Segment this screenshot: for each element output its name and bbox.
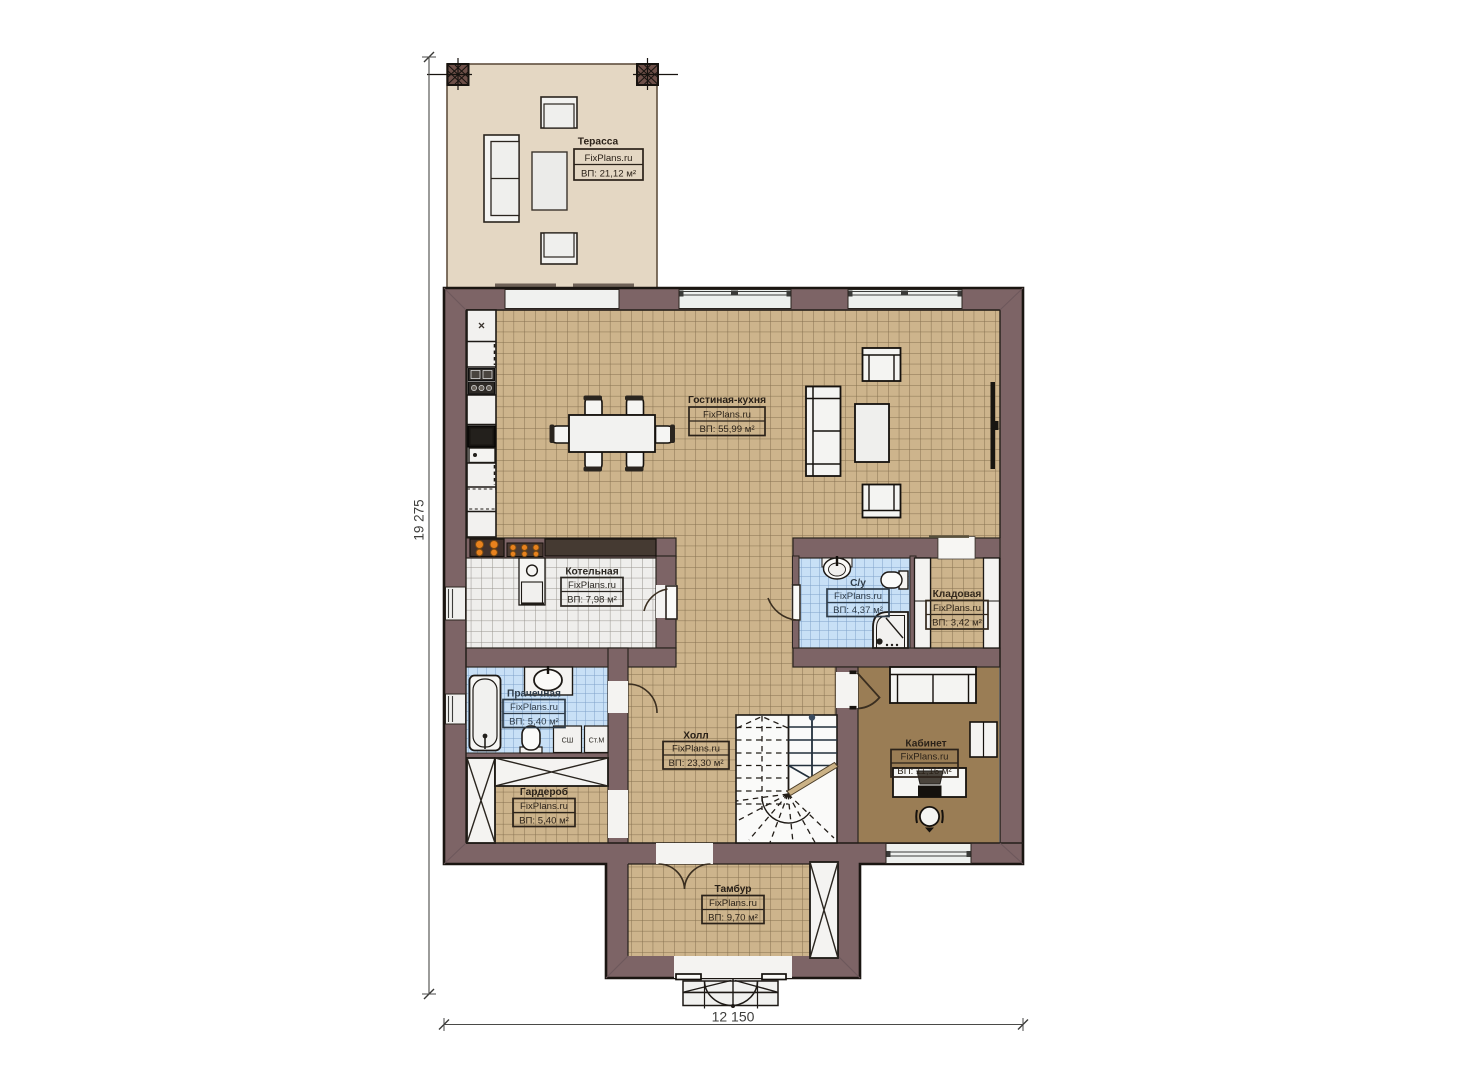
svg-text:СШ: СШ bbox=[562, 736, 574, 745]
svg-text:Терасса: Терасса bbox=[578, 137, 619, 148]
svg-text:ВП: 7,98 м²: ВП: 7,98 м² bbox=[567, 595, 618, 606]
svg-text:FixPlans.ru: FixPlans.ru bbox=[703, 410, 751, 421]
svg-text:ВП: 11,16 м²: ВП: 11,16 м² bbox=[897, 766, 952, 777]
svg-text:FixPlans.ru: FixPlans.ru bbox=[834, 591, 882, 602]
svg-text:ВП: 21,12 м²: ВП: 21,12 м² bbox=[581, 169, 637, 180]
svg-text:Гостиная-кухня: Гостиная-кухня bbox=[688, 395, 766, 406]
svg-text:Котельная: Котельная bbox=[565, 567, 618, 578]
svg-text:Гардероб: Гардероб bbox=[520, 786, 568, 798]
svg-text:FixPlans.ru: FixPlans.ru bbox=[568, 580, 616, 591]
svg-text:ВП: 4,37 м²: ВП: 4,37 м² bbox=[833, 605, 884, 616]
svg-text:С/у: С/у bbox=[850, 578, 866, 589]
svg-text:Кабинет: Кабинет bbox=[905, 738, 946, 750]
svg-text:ВП: 3,42 м²: ВП: 3,42 м² bbox=[932, 618, 983, 629]
svg-text:ВП: 9,70 м²: ВП: 9,70 м² bbox=[708, 913, 759, 924]
svg-text:FixPlans.ru: FixPlans.ru bbox=[585, 153, 633, 164]
svg-text:FixPlans.ru: FixPlans.ru bbox=[520, 801, 568, 812]
svg-text:Тамбур: Тамбур bbox=[715, 883, 752, 895]
svg-text:FixPlans.ru: FixPlans.ru bbox=[709, 898, 757, 909]
svg-text:19 275: 19 275 bbox=[412, 499, 427, 540]
svg-text:Ст.М: Ст.М bbox=[589, 736, 605, 745]
svg-text:Прачечная: Прачечная bbox=[507, 689, 561, 700]
svg-text:ВП: 55,99 м²: ВП: 55,99 м² bbox=[699, 424, 755, 435]
svg-text:ВП: 5,40 м²: ВП: 5,40 м² bbox=[509, 717, 560, 728]
svg-text:Холл: Холл bbox=[683, 731, 709, 742]
svg-text:Кладовая: Кладовая bbox=[933, 589, 982, 600]
svg-text:FixPlans.ru: FixPlans.ru bbox=[901, 752, 949, 763]
svg-text:ВП: 5,40 м²: ВП: 5,40 м² bbox=[519, 816, 570, 827]
svg-text:FixPlans.ru: FixPlans.ru bbox=[672, 744, 720, 755]
svg-text:FixPlans.ru: FixPlans.ru bbox=[933, 603, 981, 614]
svg-text:12 150: 12 150 bbox=[712, 1009, 755, 1025]
svg-text:FixPlans.ru: FixPlans.ru bbox=[510, 702, 558, 713]
svg-text:ВП: 23,30 м²: ВП: 23,30 м² bbox=[668, 758, 724, 769]
